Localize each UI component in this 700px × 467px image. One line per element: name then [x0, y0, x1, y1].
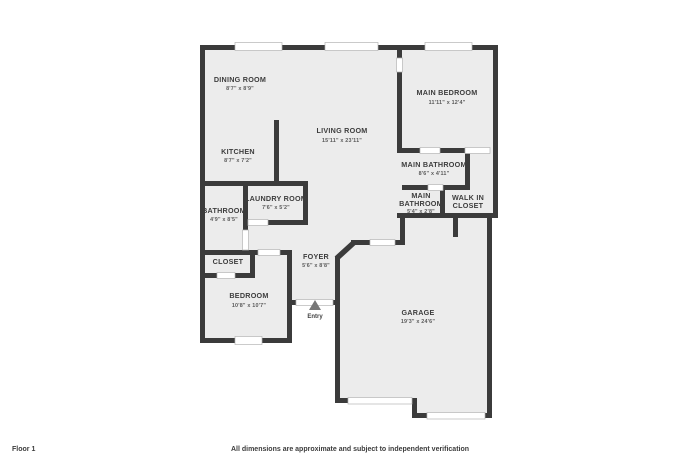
room-dims-garage: 19'3" x 24'6" [401, 319, 436, 325]
opening [325, 43, 378, 51]
wall-segment [397, 50, 402, 58]
room-name-bathroom: BATHROOM [202, 206, 246, 215]
opening [258, 250, 280, 256]
wall-segment [287, 250, 292, 343]
room-name-kitchen: KITCHEN [221, 147, 255, 156]
wall-segment [487, 218, 492, 418]
room-dims-kitchen: 8'7" x 7'2" [224, 158, 252, 164]
wall-segment [493, 45, 498, 218]
wall-segment [250, 250, 255, 278]
room-dims-bedroom: 10'8" x 10'7" [232, 303, 267, 309]
wall-segment [200, 250, 258, 255]
opening [370, 240, 395, 246]
room-dims-laundry: 7'6" x 5'2" [262, 205, 290, 211]
floorplan-svg: DINING ROOM 8'7" x 8'9" KITCHEN 8'7" x 7… [0, 0, 700, 467]
room-name-dining: DINING ROOM [214, 75, 266, 84]
opening [248, 220, 268, 226]
room-name-walkin-closet-line2: CLOSET [453, 201, 484, 210]
floorplan-page: DINING ROOM 8'7" x 8'9" KITCHEN 8'7" x 7… [0, 0, 700, 467]
opening [425, 43, 472, 51]
wall-segment [402, 185, 428, 190]
opening [428, 185, 443, 191]
wall-segment [303, 181, 308, 225]
room-name-bedroom: BEDROOM [229, 291, 268, 300]
room-name-garage: GARAGE [401, 308, 434, 317]
room-dims-dining: 8'7" x 8'9" [226, 86, 254, 92]
room-dims-main-bathroom2: 5'4" x 2'8" [407, 209, 435, 215]
wall-segment [453, 218, 458, 237]
opening [348, 398, 412, 405]
opening [397, 58, 403, 72]
room-name-main-bathroom: MAIN BATHROOM [401, 160, 466, 169]
opening [217, 273, 235, 279]
wall-segment [440, 148, 465, 153]
room-dims-foyer: 5'6" x 8'8" [302, 263, 330, 269]
wall-segment [465, 153, 470, 190]
opening [235, 337, 262, 345]
opening [427, 413, 485, 420]
disclaimer-text: All dimensions are approximate and subje… [0, 446, 700, 453]
room-dims-main-bedroom: 11'11" x 12'4" [429, 100, 466, 106]
room-name-foyer: FOYER [303, 252, 330, 261]
room-dims-bathroom: 4'9" x 8'5" [210, 217, 238, 223]
room-name-living: LIVING ROOM [316, 126, 367, 135]
wall-segment [335, 256, 340, 403]
room-dims-main-bathroom: 8'6" x 4'11" [419, 171, 450, 177]
wall-segment [397, 72, 402, 153]
wall-segment [400, 218, 405, 245]
opening [465, 148, 490, 154]
room-dims-living: 15'11" x 23'11" [322, 138, 362, 144]
opening [235, 43, 282, 51]
opening [420, 148, 440, 154]
opening [243, 230, 249, 250]
wall-segment [268, 220, 308, 225]
room-name-laundry: LAUNDRY ROOM [245, 194, 307, 203]
wall-segment [412, 398, 417, 418]
wall-segment [200, 45, 205, 343]
entry-label: Entry [307, 314, 323, 320]
room-name-main-bedroom: MAIN BEDROOM [417, 88, 478, 97]
wall-segment [200, 181, 308, 186]
room-name-closet: CLOSET [213, 257, 244, 266]
room-name-main-bathroom2-line2: BATHROOM [399, 199, 443, 208]
wall-segment [274, 120, 279, 186]
